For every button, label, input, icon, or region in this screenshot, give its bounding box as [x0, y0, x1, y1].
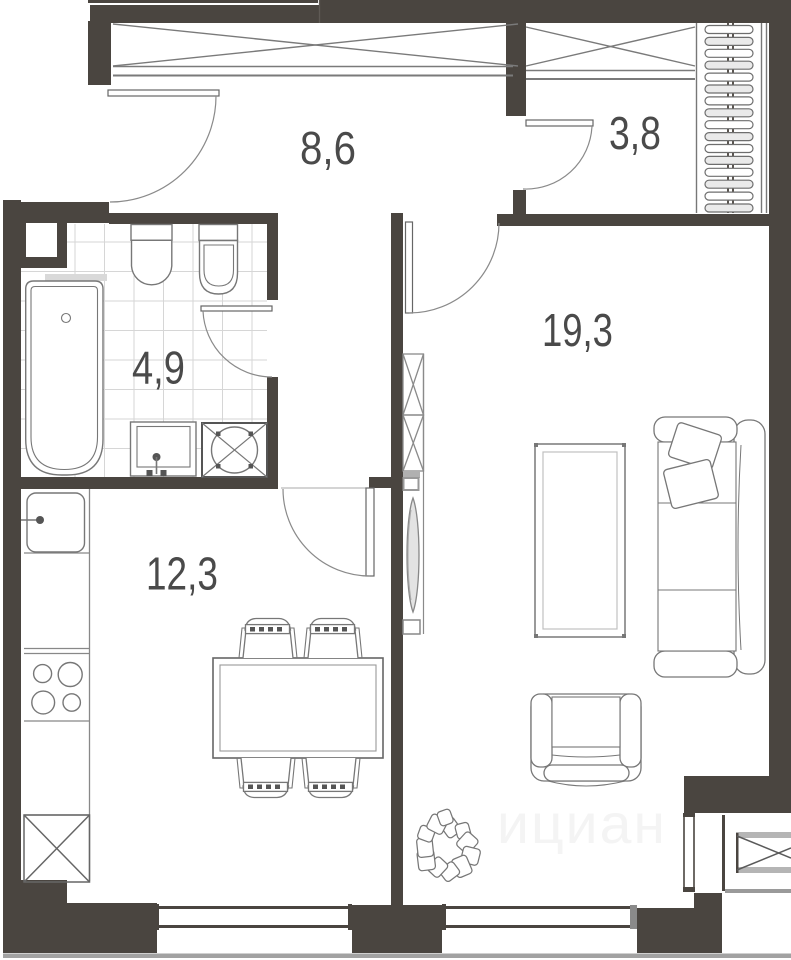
svg-text:4,9: 4,9 — [132, 342, 185, 393]
svg-text:8,6: 8,6 — [300, 124, 356, 175]
svg-text:12,3: 12,3 — [146, 548, 218, 600]
svg-text:3,8: 3,8 — [609, 107, 661, 159]
svg-text:19,3: 19,3 — [542, 304, 613, 356]
svg-text:ициан: ициан — [497, 793, 667, 855]
